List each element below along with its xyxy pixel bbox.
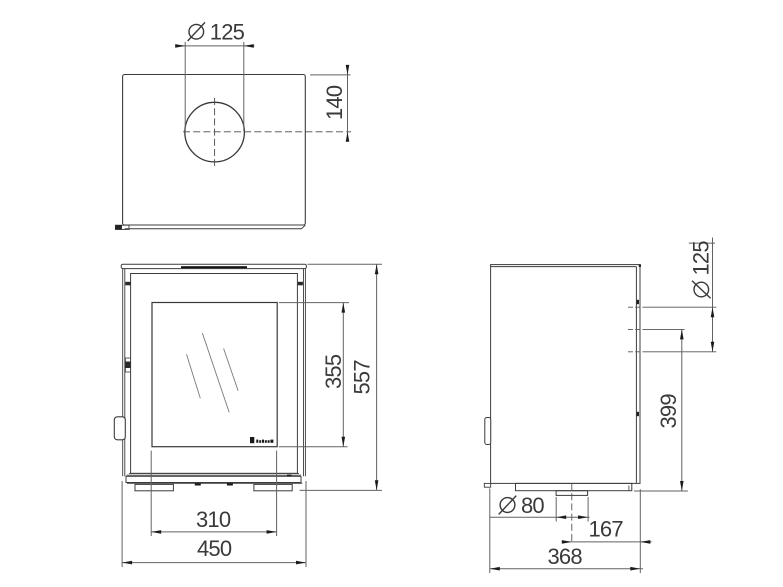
svg-text:355: 355 (321, 354, 346, 389)
svg-text:167: 167 (589, 516, 624, 541)
svg-text:310: 310 (196, 507, 231, 532)
svg-text:399: 399 (656, 394, 681, 429)
svg-text:557: 557 (350, 360, 375, 395)
svg-text:450: 450 (197, 536, 232, 561)
svg-text:125: 125 (210, 19, 245, 44)
svg-text:80: 80 (521, 493, 544, 518)
svg-text:140: 140 (322, 85, 347, 120)
svg-text:368: 368 (548, 544, 583, 569)
svg-text:125: 125 (689, 241, 714, 276)
